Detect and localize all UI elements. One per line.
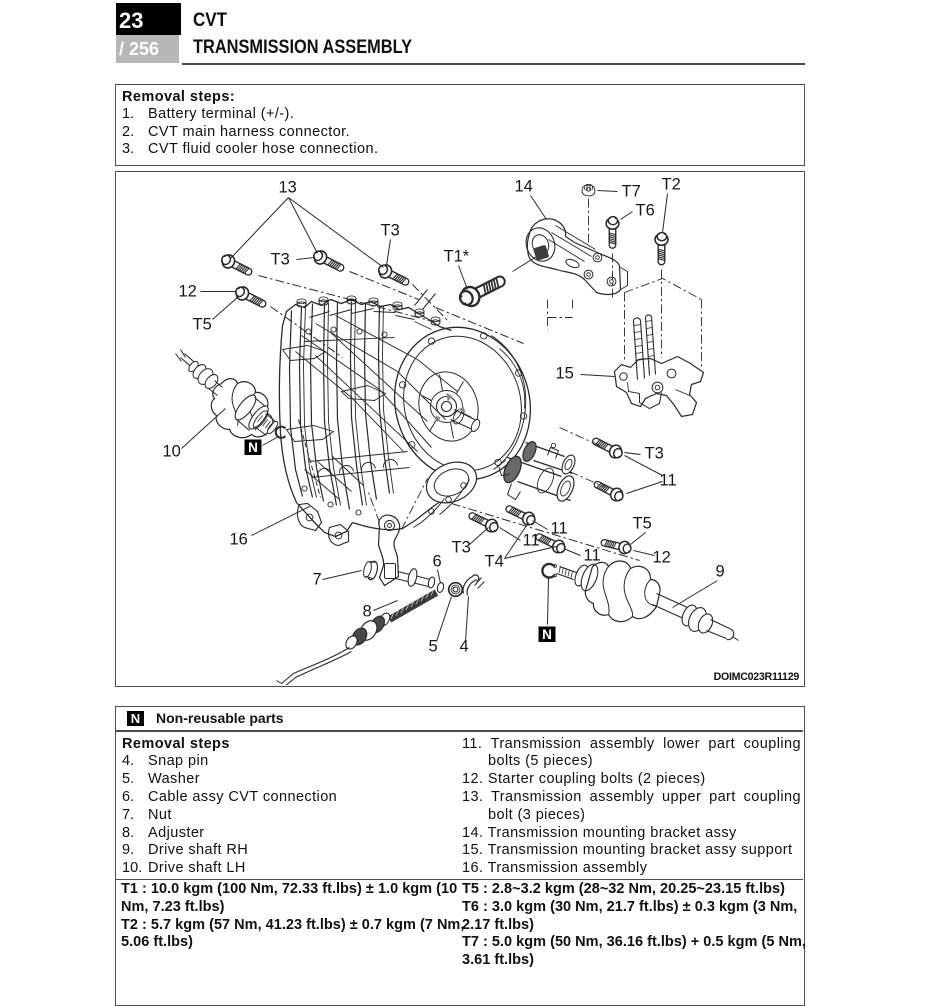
- svg-text:T4: T4: [485, 553, 504, 571]
- svg-text:T3: T3: [452, 539, 471, 557]
- svg-text:9: 9: [716, 563, 725, 581]
- svg-text:T3: T3: [645, 445, 664, 463]
- svg-text:12: 12: [179, 283, 197, 301]
- svg-text:5: 5: [429, 638, 438, 656]
- svg-text:T5: T5: [193, 316, 212, 334]
- svg-text:6: 6: [433, 553, 442, 571]
- svg-text:T1*: T1*: [444, 248, 470, 266]
- svg-text:7: 7: [313, 571, 322, 589]
- svg-text:10: 10: [163, 443, 181, 461]
- svg-text:11: 11: [551, 520, 568, 538]
- svg-text:4: 4: [460, 638, 469, 656]
- svg-text:11: 11: [660, 472, 677, 490]
- svg-text:15: 15: [556, 365, 574, 383]
- svg-text:T3: T3: [381, 222, 400, 240]
- svg-text:11: 11: [523, 532, 540, 550]
- svg-text:11: 11: [584, 547, 601, 565]
- svg-text:12: 12: [653, 549, 671, 567]
- svg-text:T3: T3: [271, 251, 290, 269]
- svg-text:T5: T5: [633, 515, 652, 533]
- svg-text:14: 14: [515, 178, 533, 196]
- svg-text:N: N: [248, 440, 258, 455]
- svg-text:16: 16: [230, 531, 248, 549]
- svg-text:T2: T2: [662, 176, 681, 194]
- svg-text:13: 13: [279, 179, 297, 197]
- svg-text:T7: T7: [622, 183, 641, 201]
- svg-text:T6: T6: [636, 202, 655, 220]
- svg-text:8: 8: [363, 603, 372, 621]
- svg-text:N: N: [542, 627, 552, 642]
